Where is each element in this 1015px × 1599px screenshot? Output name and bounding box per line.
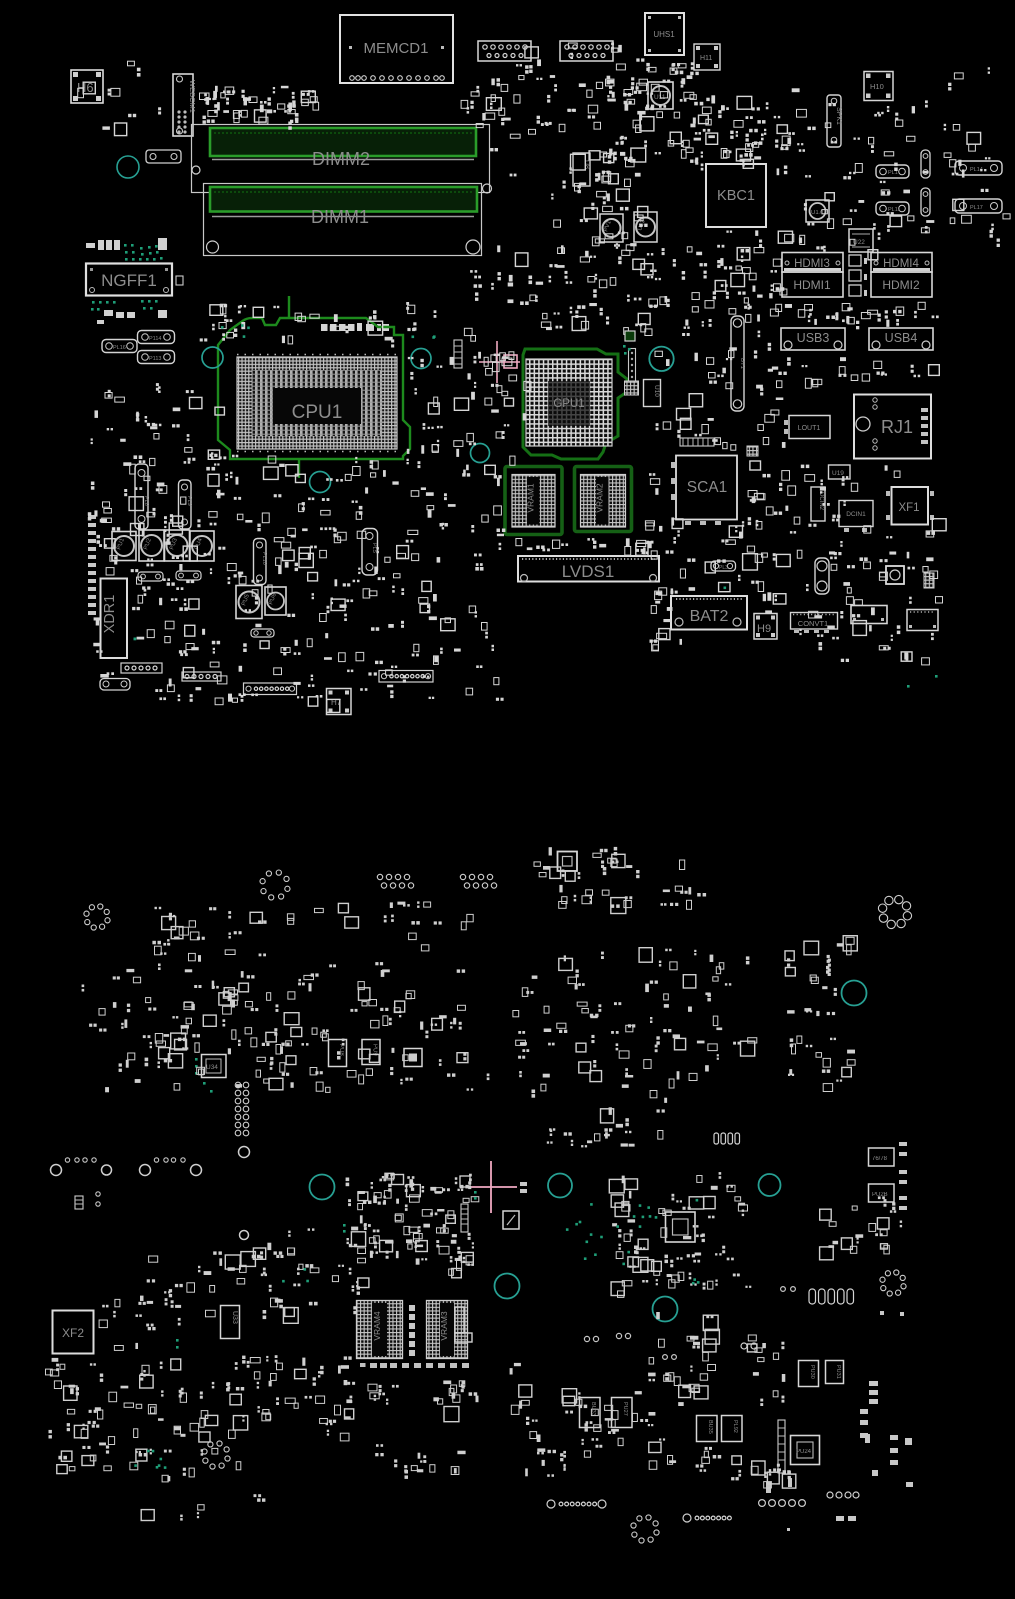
svg-text:U19: U19 [832,470,844,477]
svg-text:P113: P113 [149,356,161,362]
svg-text:USB4: USB4 [885,331,918,345]
svg-text:XDR1: XDR1 [102,595,118,634]
svg-text:PL17: PL17 [970,205,983,211]
svg-text:PL11: PL11 [888,207,900,213]
svg-text:NGFF1: NGFF1 [101,271,157,290]
svg-text:BU35: BU35 [707,1420,713,1434]
svg-text:76/78: 76/78 [872,1156,888,1162]
svg-text:USB3: USB3 [797,331,830,345]
svg-text:LVDS1: LVDS1 [562,562,615,581]
svg-text:U17: U17 [811,210,823,216]
svg-text:KBC1: KBC1 [717,188,755,204]
svg-text:VRAM2: VRAM2 [595,483,605,513]
svg-text:XF1: XF1 [898,502,919,514]
svg-text:PU24: PU24 [796,1449,812,1455]
svg-text:CPU1: CPU1 [292,402,343,423]
svg-text:VRAM4: VRAM4 [372,1311,382,1341]
svg-text:UHS1: UHS1 [653,30,675,39]
svg-text:PU30: PU30 [809,1365,815,1379]
svg-text:PL9: PL9 [186,496,192,506]
svg-text:HDMI2: HDMI2 [882,278,920,292]
svg-text:H9: H9 [757,623,771,635]
svg-text:PU31: PU31 [835,1365,841,1379]
svg-text:WEBCM1: WEBCM1 [188,80,197,113]
svg-text:SPK1: SPK1 [835,107,842,125]
svg-text:PL3: PL3 [719,565,728,571]
svg-text:H10: H10 [870,82,884,91]
svg-text:DIMM2: DIMM2 [312,149,370,169]
svg-text:PL5: PL5 [371,543,377,553]
svg-text:BT1: BT1 [739,358,745,370]
svg-text:U33: U33 [231,1311,238,1324]
svg-text:VRAM3: VRAM3 [439,1311,449,1341]
svg-text:PU27: PU27 [622,1402,628,1416]
svg-text:U8: U8 [583,160,590,169]
svg-text:H11: H11 [700,55,712,62]
svg-text:SCA1: SCA1 [687,479,728,496]
svg-text:CONVT1: CONVT1 [798,619,828,628]
svg-text:U10: U10 [653,385,660,397]
svg-text:VRAM1: VRAM1 [526,483,536,513]
svg-text:DIMM1: DIMM1 [311,207,369,227]
svg-text:DCIN1: DCIN1 [846,511,866,518]
svg-text:PL92: PL92 [732,1420,738,1433]
svg-text:RJ1: RJ1 [881,417,913,437]
svg-text:PL10: PL10 [261,552,267,565]
svg-text:XF2: XF2 [62,1326,84,1340]
svg-text:P114: P114 [149,336,161,342]
svg-text:PL16: PL16 [113,345,126,351]
svg-text:U34: U34 [206,1064,218,1071]
svg-text:HDMI1: HDMI1 [793,278,831,292]
svg-text:DCIN2: DCIN2 [818,492,824,511]
svg-text:LOUT1: LOUT1 [798,425,821,432]
svg-text:GPU1: GPU1 [553,398,584,410]
svg-text:BAT2: BAT2 [690,608,729,625]
svg-text:MEMCD1: MEMCD1 [363,40,428,57]
